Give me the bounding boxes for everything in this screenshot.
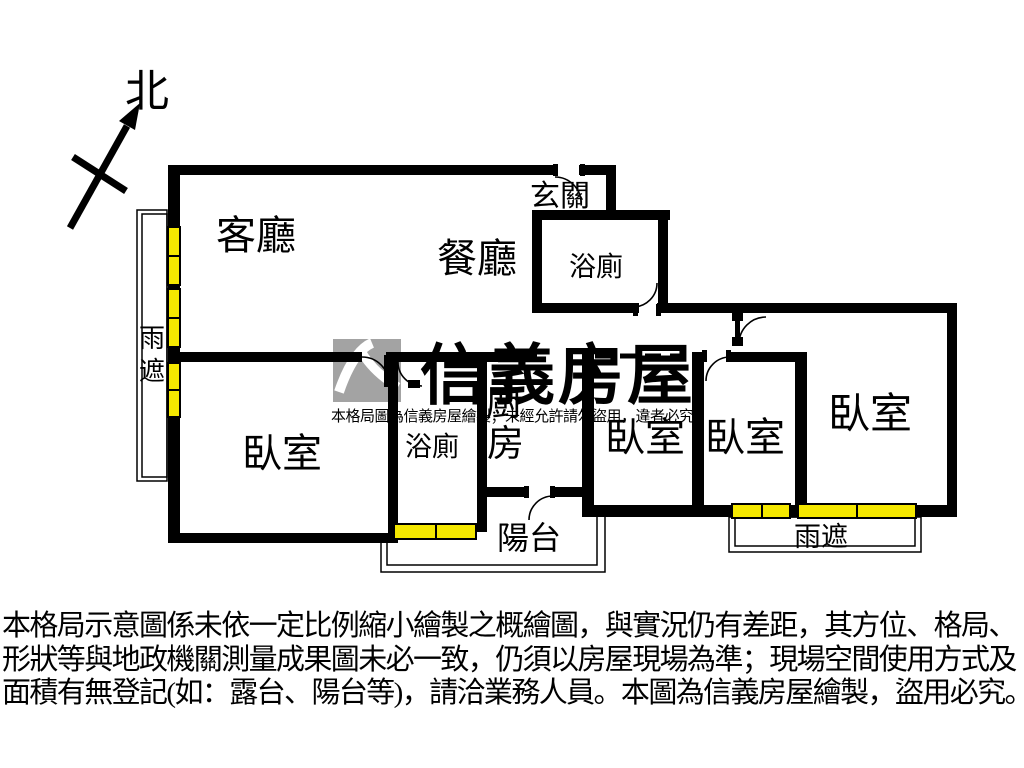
disclaimer-line-2: 形狀等與地政機關測量成果圖未必一致，仍須以房屋現場為準；現場空間使用方式及	[2, 644, 1024, 678]
label-entry: 玄關	[530, 180, 590, 213]
balcony-door-arc	[529, 496, 553, 520]
label-dining-room: 餐廳	[437, 236, 517, 281]
disclaimer-line-3: 面積有無登記(如：露台、陽台等)，請洽業務人員。本圖為信義房屋繪製，盜用必究。	[2, 677, 1024, 711]
corridor-door-arc	[739, 317, 766, 344]
label-kitchen-char1: 廚	[486, 382, 523, 424]
label-bath-lower: 浴廁	[405, 432, 459, 462]
north-arrow-cross	[73, 157, 126, 191]
label-kitchen-char2: 房	[487, 424, 524, 465]
disclaimer-text: 本格局示意圖係未依一定比例縮小繪製之概繪圖，與實況仍有差距，其方位、格局、 形狀…	[2, 610, 1024, 711]
label-canopy-bottom: 雨遮	[794, 522, 848, 552]
disclaimer-line-1: 本格局示意圖係未依一定比例縮小繪製之概繪圖，與實況仍有差距，其方位、格局、	[2, 610, 1024, 644]
label-living-room: 客廳	[216, 213, 296, 258]
north-label: 北	[125, 67, 169, 116]
balcony-outline	[381, 513, 605, 572]
label-bath-upper: 浴廁	[569, 252, 623, 282]
label-canopy-left-char2: 遮	[139, 357, 165, 386]
label-canopy-left-char1: 雨	[139, 324, 165, 353]
label-bedroom-mid-left: 臥室	[605, 415, 685, 460]
label-bedroom-mid-right: 臥室	[705, 415, 785, 460]
label-bedroom-right: 臥室	[828, 391, 912, 438]
label-balcony: 陽台	[497, 520, 561, 556]
watermark-brand: 信義房屋	[420, 340, 696, 413]
label-bedroom-left: 臥室	[242, 431, 322, 476]
floorplan-page: 信義房屋 本格局圖為信義房屋繪製；未經允許請勿盜用，違者必究	[0, 0, 1024, 768]
compass: 北	[70, 67, 169, 228]
